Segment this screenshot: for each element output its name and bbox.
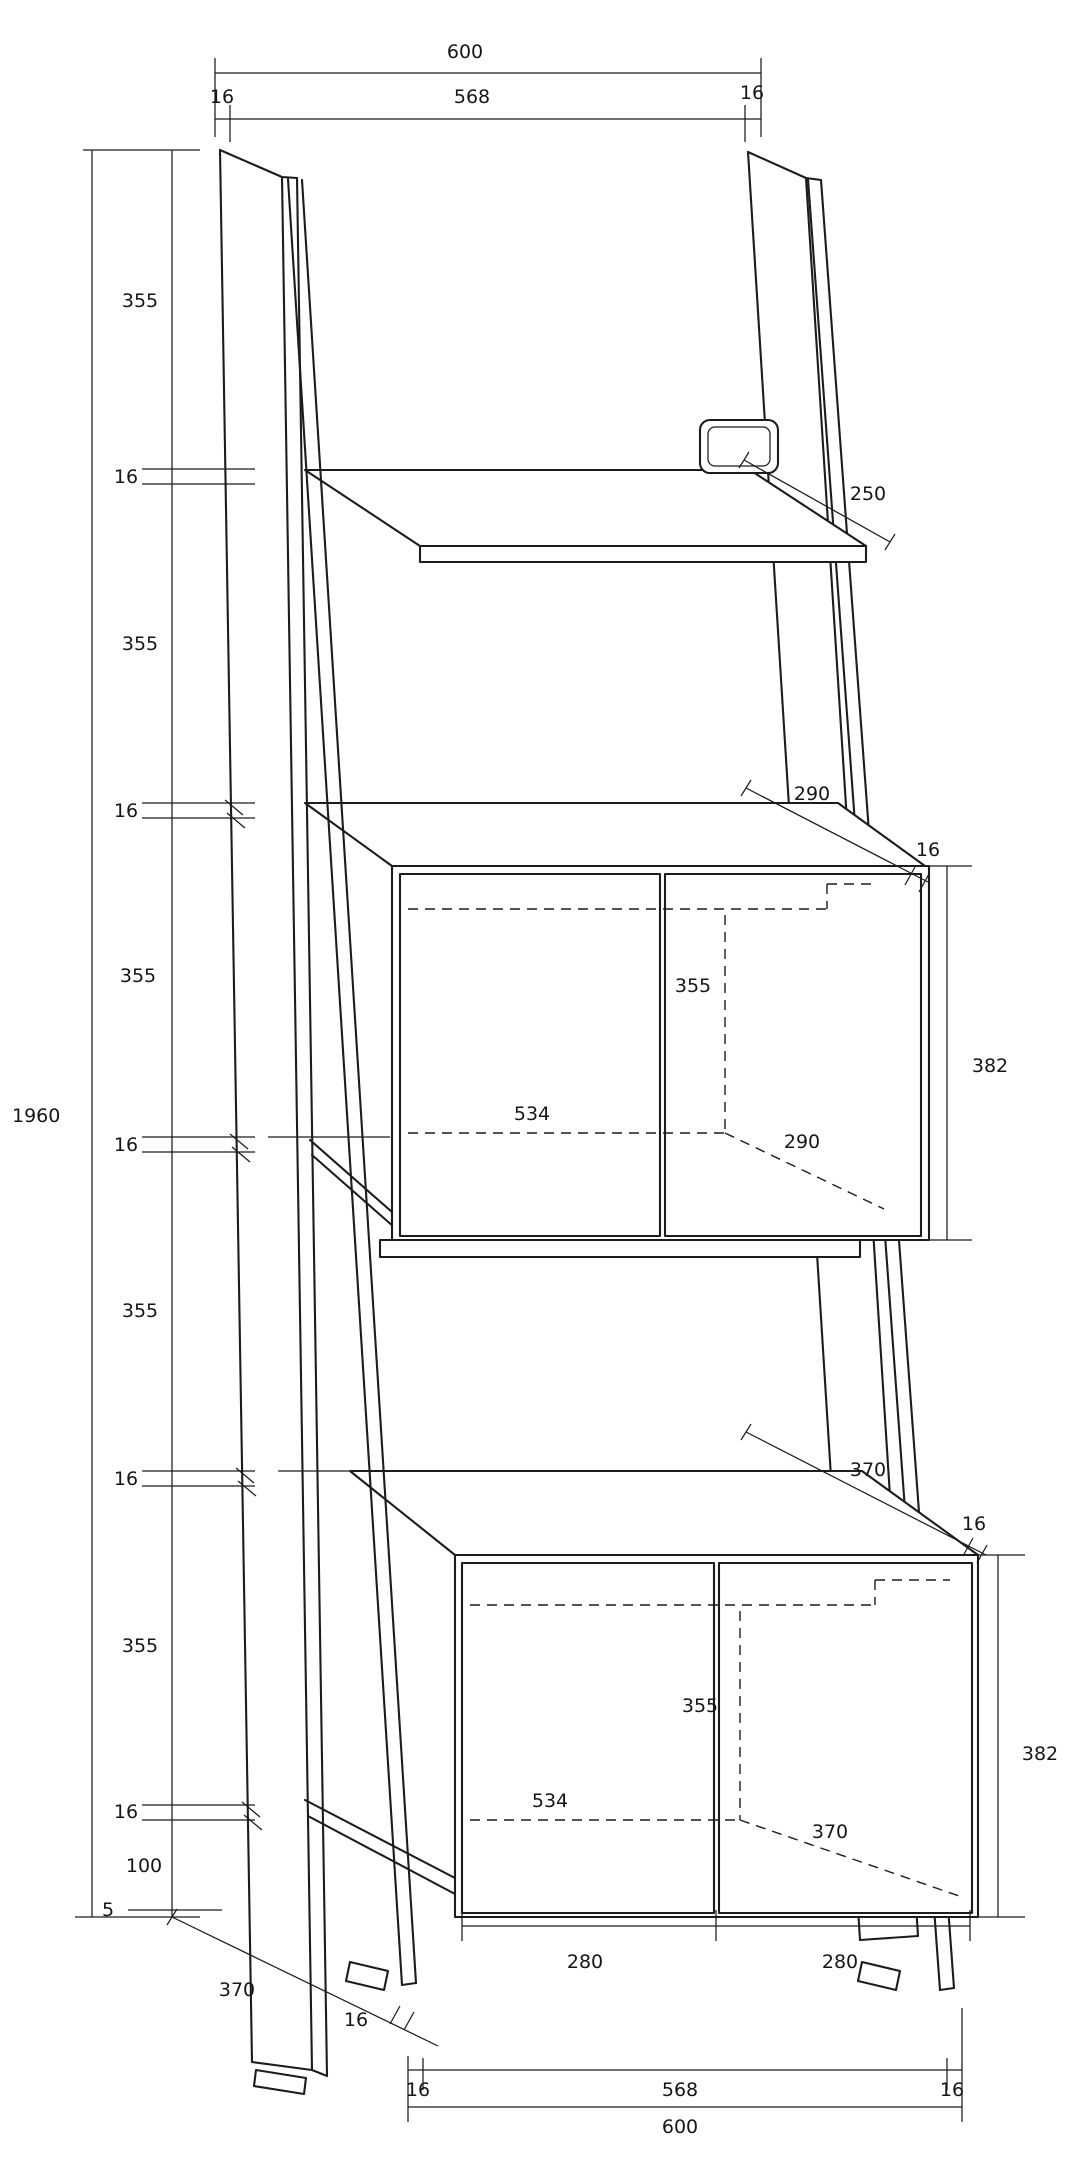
top-chain-inner-ticks xyxy=(230,105,745,142)
middle-shelf-back-edge xyxy=(268,1137,394,1227)
dim-left-t2: 16 xyxy=(114,800,138,822)
door-width-chain: 280 280 xyxy=(462,1910,970,1973)
left-chain-tick-pair-5 xyxy=(142,1805,255,1820)
dim-bot-inner-depth: 370 xyxy=(812,1821,848,1843)
dim-base-overall: 600 xyxy=(662,2116,698,2138)
shelf5-edge-top xyxy=(305,1800,455,1878)
dim-left-100: 100 xyxy=(126,1855,162,1877)
foot-16-ticks xyxy=(390,2006,414,2030)
front-left-stile-top-edge xyxy=(220,150,297,178)
bottom-cabinet-right-door xyxy=(719,1563,972,1913)
front-right-stile-bottom-edge xyxy=(940,1988,954,1990)
dim-bot-door-w: 534 xyxy=(532,1790,568,1812)
dim-left-seg2: 355 xyxy=(122,633,158,655)
back-left-foot xyxy=(346,1962,388,1990)
stile-notch-3 xyxy=(236,1468,256,1496)
technical-drawing: 600 16 568 16 355 16 355 16 355 16 355 1… xyxy=(0,0,1080,2168)
dim290-start-tick xyxy=(741,780,751,796)
dim-mid-depth: 290 xyxy=(794,783,830,805)
dim370-start-tick xyxy=(741,1424,751,1440)
dim-base-inner: 568 xyxy=(662,2079,698,2101)
dim-left-t1: 16 xyxy=(114,466,138,488)
left-chain-tick-pair-1 xyxy=(142,469,255,484)
front-left-stile-bottom-edge xyxy=(252,2062,327,2076)
bottom-cabinet xyxy=(350,1471,978,1917)
front-left-stile-right-edge xyxy=(282,177,312,2070)
dim-mid-door-h: 355 xyxy=(675,975,711,997)
dim382-mid-ticks xyxy=(929,866,972,1240)
dim-left-5: 5 xyxy=(102,1899,114,1921)
dim-mid-door-w: 534 xyxy=(514,1103,550,1125)
back-right-stile-bottom-edge xyxy=(860,1936,918,1940)
shelf5-edge-bottom xyxy=(308,1816,455,1894)
dim-overall-height: 1960 xyxy=(12,1105,60,1127)
front-left-stile-left-edge xyxy=(220,150,252,2062)
dim-bot-height: 382 xyxy=(1022,1743,1058,1765)
middle-cabinet-left-door xyxy=(400,874,660,1236)
dim382-bot-ticks xyxy=(978,1555,1025,1917)
dim-base-left16: 16 xyxy=(406,2079,430,2101)
top-shelf-front-face xyxy=(420,546,866,562)
middle-cabinet-top-surface xyxy=(305,803,925,866)
front-left-foot xyxy=(254,2070,306,2094)
base-dimension-chain: 16 568 16 600 xyxy=(406,2008,964,2138)
dim-mid-inner-depth: 290 xyxy=(784,1131,820,1153)
dim-top-left16: 16 xyxy=(210,86,234,108)
dim-left-t5: 16 xyxy=(114,1801,138,1823)
dim-top-shelf-depth: 250 xyxy=(850,483,886,505)
middle-cabinet-right-door xyxy=(665,874,921,1236)
wall-bracket xyxy=(700,420,778,473)
dim-mid-height: 382 xyxy=(972,1055,1008,1077)
bottom-cabinet-left-door xyxy=(462,1563,714,1913)
bottom-cabinet-top-surface xyxy=(350,1471,978,1555)
front-left-stile-side-edge xyxy=(297,178,327,2076)
dim-top-right16: 16 xyxy=(740,82,764,104)
stile-notch-4 xyxy=(242,1802,262,1830)
dim-leg-depth: 370 xyxy=(219,1979,255,2001)
dim-top-inner: 568 xyxy=(454,86,490,108)
dim-bot-depth: 370 xyxy=(850,1459,886,1481)
top-dimension-chain: 600 16 568 16 xyxy=(210,41,764,142)
dim-left-t4: 16 xyxy=(114,1468,138,1490)
middle-cabinet-bottom-shelf-face xyxy=(380,1240,860,1257)
dim-mid-thick: 16 xyxy=(916,839,940,861)
dim-door-right: 280 xyxy=(822,1951,858,1973)
back-left-stile-bottom-edge xyxy=(402,1983,416,1985)
drawing-canvas: 600 16 568 16 355 16 355 16 355 16 355 1… xyxy=(0,0,1080,2168)
dim-top-overall: 600 xyxy=(447,41,483,63)
stile-notch-1 xyxy=(225,800,245,828)
back-right-foot xyxy=(858,1962,900,1990)
middle-cabinet xyxy=(305,803,929,1257)
dim-base-right16: 16 xyxy=(940,2079,964,2101)
dim-door-left: 280 xyxy=(567,1951,603,1973)
left-dimension-chain: 355 16 355 16 355 16 355 16 355 16 100 5… xyxy=(12,150,255,1921)
dim-bot-thick: 16 xyxy=(962,1513,986,1535)
dim-left-seg5: 355 xyxy=(122,1635,158,1657)
left-chain-tick-pair-4 xyxy=(142,1471,255,1486)
leg-depth-dim: 370 16 xyxy=(167,1909,438,2046)
dim-left-t3: 16 xyxy=(114,1134,138,1156)
dim-bot-door-h: 355 xyxy=(682,1695,718,1717)
dim-foot-thick: 16 xyxy=(344,2009,368,2031)
back-right-stile-top-edge xyxy=(748,152,821,180)
back-left-stile-left-edge xyxy=(288,179,402,1985)
dim-left-seg1: 355 xyxy=(122,290,158,312)
top-shelf xyxy=(305,470,866,562)
stile-notch-2 xyxy=(230,1134,250,1162)
dim-left-seg4: 355 xyxy=(122,1300,158,1322)
dim-left-seg3: 355 xyxy=(120,965,156,987)
left-chain-tick-pair-3 xyxy=(142,1137,255,1152)
